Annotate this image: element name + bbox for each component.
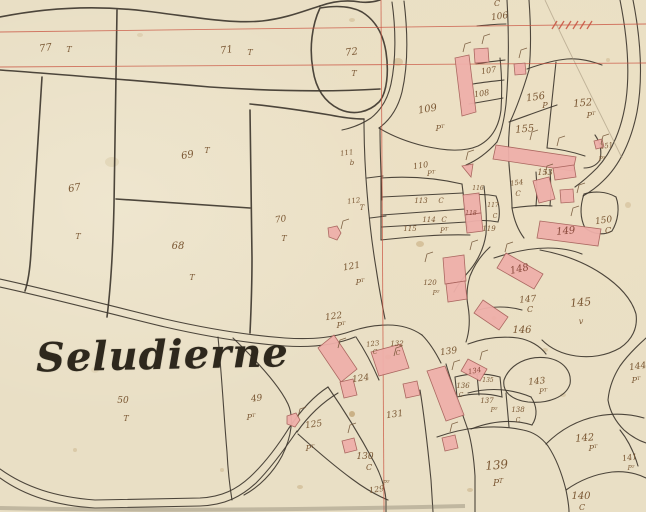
parcel-label: 67 — [67, 182, 82, 195]
boundary-line — [370, 216, 386, 218]
paper-stain — [467, 488, 473, 492]
building — [328, 226, 341, 240]
parcel-label: PT — [439, 227, 449, 235]
boundary-line — [381, 177, 462, 184]
parcel-label: PT — [246, 413, 256, 422]
parcel-label: C — [605, 226, 611, 235]
paper-stain — [137, 33, 143, 37]
parcel-label: PT — [492, 478, 504, 489]
tick-mark — [482, 34, 490, 44]
boundary-line — [116, 199, 250, 208]
parcel-label: 116 — [472, 185, 484, 192]
parcel-label: PT — [538, 388, 548, 396]
bottom-shadow-band — [0, 506, 465, 510]
parcel-label: 111 — [340, 148, 354, 158]
parcel-label: 135 — [482, 377, 494, 384]
building — [514, 63, 526, 75]
red-grid-line — [0, 24, 646, 32]
cadastral-map: 77T71T72T69T67T68T70T50T49PT125PTC106107… — [0, 0, 646, 512]
parcel-label: T — [360, 204, 366, 212]
parcel-label: 146 — [512, 325, 532, 336]
parcel-label: 139 — [485, 457, 509, 473]
building — [403, 381, 420, 398]
boundary-line — [473, 80, 504, 84]
building — [342, 438, 357, 453]
boundary-line — [382, 209, 465, 215]
parcel-label: 142 — [575, 432, 595, 445]
building — [446, 281, 467, 302]
parcel-label: 152 — [573, 97, 593, 110]
building — [553, 165, 576, 180]
parcel-label: v — [579, 317, 584, 326]
boundary-line — [566, 472, 646, 490]
boundary-line — [420, 390, 433, 512]
paper-stain — [606, 58, 610, 62]
parcel-label: PT — [586, 111, 596, 120]
paper-stain — [349, 18, 355, 22]
tick-mark — [571, 206, 579, 216]
parcel-label: PT — [588, 444, 598, 453]
boundary-line — [531, 397, 536, 425]
paper-stain — [625, 202, 631, 208]
place-name-label: Seludierne — [36, 329, 277, 381]
parcel-label: 137 — [480, 397, 494, 405]
boundary-line — [0, 70, 380, 91]
parcel-label: T — [123, 414, 129, 423]
parcel-label: 141 — [621, 452, 637, 463]
parcel-label: 113 — [414, 197, 428, 205]
parcel-label: 115 — [403, 225, 417, 233]
parcel-label: 154 — [510, 178, 524, 188]
parcel-label: C — [493, 213, 498, 220]
boundary-line — [466, 306, 469, 342]
paper-stain — [220, 468, 224, 472]
parcel-label: 69 — [180, 149, 195, 162]
tick-mark — [557, 136, 565, 146]
map-canvas: 77T71T72T69T67T68T70T50T49PT125PTC106107… — [0, 0, 646, 512]
parcel-label: 140 — [571, 491, 591, 502]
boundary-line — [547, 62, 556, 148]
parcel-label: T — [351, 69, 357, 78]
parcel-label: 139 — [440, 346, 459, 358]
parcel-label: C — [373, 349, 378, 356]
parcel-label: 147 — [519, 294, 537, 305]
boundary-line — [25, 77, 42, 291]
paper-stain — [349, 411, 355, 417]
boundary-line — [0, 428, 289, 500]
parcel-label: 124 — [352, 373, 371, 385]
boundary-line — [0, 431, 297, 508]
parcel-label: 70 — [274, 214, 287, 226]
parcel-label: C — [366, 463, 372, 472]
boundary-line — [468, 337, 546, 354]
boundary-line — [467, 247, 490, 306]
building — [462, 164, 473, 177]
parcel-label: T — [75, 232, 81, 241]
parcel-label: 143 — [528, 376, 546, 387]
parcel-label: C — [579, 503, 585, 512]
boundary-line — [608, 338, 646, 443]
parcel-label: 109 — [417, 102, 438, 116]
paper-stain — [73, 448, 77, 452]
boundary-line — [311, 7, 387, 113]
parcel-label: C — [396, 350, 401, 357]
parcel-label: C — [516, 417, 521, 424]
parcel-label: PT — [336, 321, 346, 330]
parcel-label: b — [350, 159, 355, 167]
red-grid-line — [381, 0, 384, 512]
parcel-label: P — [541, 101, 548, 110]
parcel-label: C — [515, 190, 521, 198]
parcel-label: 130 — [356, 452, 373, 462]
parcel-label: PT — [598, 155, 606, 163]
tick-mark — [505, 242, 513, 252]
parcel-label: 120 — [423, 279, 437, 287]
boundary-line — [0, 6, 320, 22]
paper-stain — [297, 485, 303, 489]
parcel-label: 136 — [456, 382, 470, 390]
building — [560, 189, 574, 203]
tick-mark — [341, 219, 349, 229]
tick-mark — [480, 350, 488, 360]
parcel-label: PT — [305, 444, 315, 453]
parcel-label: 107 — [480, 65, 497, 76]
parcel-label: C — [459, 392, 464, 399]
boundary-line — [512, 208, 524, 238]
tick-mark — [466, 150, 474, 160]
parcel-label: 151 — [599, 141, 614, 151]
parcel-label: PT — [426, 170, 436, 178]
parcel-label: 118 — [465, 210, 477, 217]
boundary-line — [352, 325, 422, 335]
parcel-label: T — [204, 146, 210, 155]
parcel-label: 72 — [345, 46, 359, 59]
paper-stain — [416, 241, 424, 247]
parcel-label: 153 — [537, 168, 552, 177]
red-grid-line — [0, 63, 646, 67]
building — [442, 435, 458, 451]
parcel-label: 145 — [570, 295, 592, 310]
parcel-label: 121 — [342, 261, 361, 274]
tick-mark — [450, 422, 458, 432]
parcel-label: 123 — [366, 339, 381, 349]
tick-mark — [452, 360, 460, 370]
parcel-label: 131 — [386, 409, 404, 421]
parcel-label: 106 — [491, 11, 510, 23]
parcel-label: 132 — [390, 340, 404, 348]
building — [443, 255, 466, 284]
parcel-label: 68 — [172, 241, 185, 252]
boundary-line — [471, 422, 532, 429]
parcel-label: 144 — [629, 361, 646, 373]
parcel-label: T — [66, 45, 72, 54]
parcel-label: PT — [627, 464, 635, 472]
parcel-label: PT — [435, 124, 445, 133]
tick-mark — [425, 252, 433, 262]
tick-mark — [470, 240, 478, 250]
boundary-line — [381, 235, 470, 240]
parcel-label: 155 — [515, 123, 535, 136]
boundary-line — [509, 122, 513, 208]
parcel-label: PT — [432, 289, 440, 297]
parcel-label: T — [189, 273, 195, 282]
parcel-label: 49 — [249, 393, 263, 405]
parcel-label: 50 — [117, 396, 129, 406]
parcel-label: 108 — [473, 88, 489, 99]
boundary-line — [320, 0, 380, 6]
tick-mark — [519, 48, 527, 58]
parcel-label: 149 — [556, 225, 577, 238]
boundary-line — [512, 206, 552, 208]
parcel-label: PT — [631, 376, 641, 385]
boundary-line — [466, 142, 497, 165]
tick-mark — [298, 407, 306, 417]
parcel-label: C — [438, 197, 444, 205]
parcel-label: 125 — [305, 419, 324, 431]
parcel-label: PT — [382, 479, 390, 487]
building — [474, 300, 508, 330]
building — [474, 48, 489, 63]
parcel-label: T — [281, 234, 287, 243]
parcel-label: 117 — [487, 202, 499, 209]
boundary-line — [546, 414, 644, 444]
parcel-label: 138 — [511, 406, 525, 414]
tick-mark — [463, 42, 471, 52]
parcel-label: 71 — [220, 44, 234, 57]
parcel-label: PT — [355, 278, 365, 287]
boundary-line — [250, 110, 252, 333]
parcel-label: C — [441, 216, 447, 224]
parcel-label: PT — [490, 406, 498, 414]
parcel-label: C — [494, 0, 500, 8]
parcel-label: T — [247, 48, 253, 57]
paper-stain — [105, 157, 119, 167]
boundary-line — [529, 0, 531, 70]
parcel-label: 77 — [39, 42, 54, 55]
parcel-label: C — [527, 305, 533, 314]
parcel-label: 114 — [422, 216, 435, 224]
boundary-line — [422, 335, 441, 363]
parcel-label: 119 — [482, 225, 496, 233]
